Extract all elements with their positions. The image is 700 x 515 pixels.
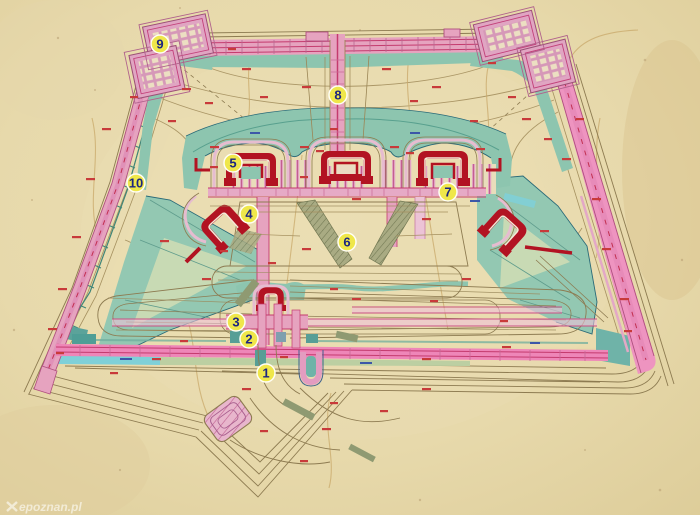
svg-text:3: 3 (232, 315, 239, 330)
svg-text:10: 10 (129, 176, 143, 191)
svg-text:4: 4 (245, 207, 253, 222)
svg-text:7: 7 (444, 185, 451, 200)
svg-text:epoznan.pl: epoznan.pl (19, 500, 82, 514)
svg-text:5: 5 (229, 156, 236, 171)
svg-text:9: 9 (156, 37, 163, 52)
svg-text:1: 1 (262, 366, 269, 381)
svg-text:2: 2 (245, 332, 252, 347)
svg-text:8: 8 (334, 88, 341, 103)
svg-text:6: 6 (343, 235, 350, 250)
